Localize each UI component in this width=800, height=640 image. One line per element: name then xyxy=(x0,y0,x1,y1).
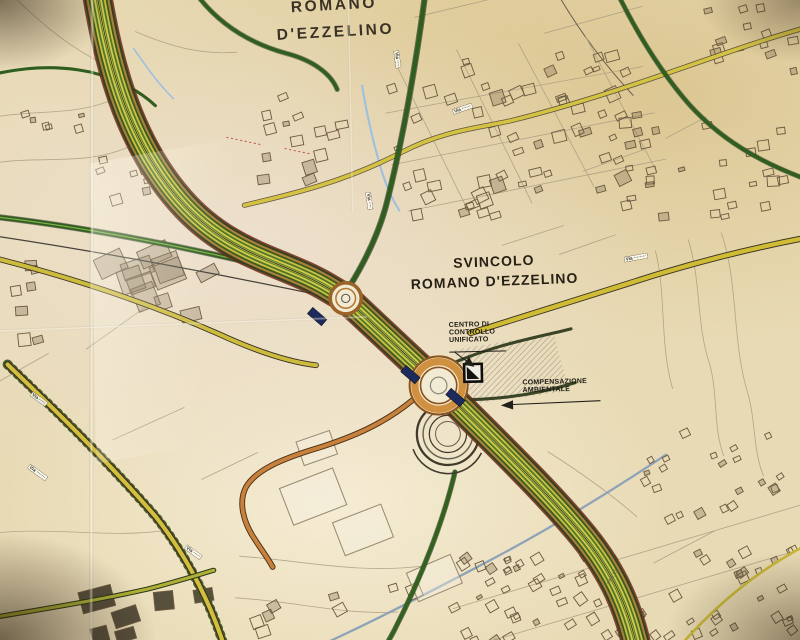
road-name-label: Via ······ xyxy=(453,103,473,114)
callout-control-center: CENTRO DI CONTROLLO UNIFICATO xyxy=(449,320,496,344)
map-labels: ROMANO D'EZZELINO SVINCOLO ROMANO D'EZZE… xyxy=(0,0,800,640)
map-photo: ROMANO D'EZZELINO SVINCOLO ROMANO D'EZZE… xyxy=(0,0,800,640)
town-label: ROMANO D'EZZELINO xyxy=(245,0,424,51)
road-name-label: Via ···· xyxy=(394,51,401,68)
road-name-label: Via ······· xyxy=(28,464,48,480)
road-name-label: Via ····· xyxy=(185,545,202,559)
callout-environmental: COMPENSAZIONE AMBIENTALE xyxy=(522,377,587,393)
elevation-mark: +43.33 xyxy=(605,568,619,586)
paper-map: ROMANO D'EZZELINO SVINCOLO ROMANO D'EZZE… xyxy=(0,0,800,640)
callout-environmental-line2: AMBIENTALE xyxy=(523,385,588,394)
road-name-label: Via ····· xyxy=(30,392,47,406)
callout-control-center-line3: UNIFICATO xyxy=(449,335,495,344)
road-name-label: Via ···· xyxy=(366,192,373,209)
road-name-label: Via ········ xyxy=(624,253,647,262)
interchange-label: SVINCOLO ROMANO D'EZZELINO xyxy=(390,248,598,295)
